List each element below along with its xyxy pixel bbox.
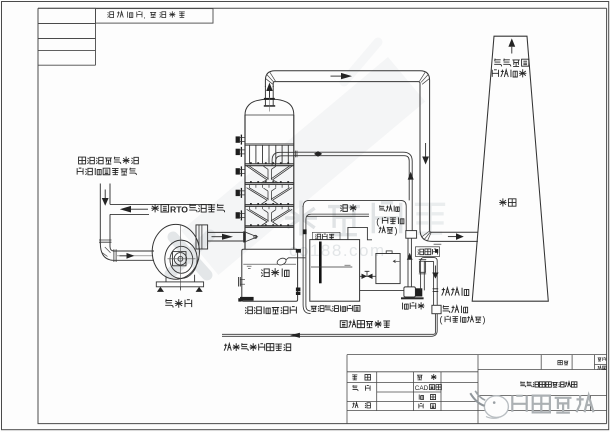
svg-text:(: ( bbox=[440, 315, 443, 325]
svg-text:(: ( bbox=[376, 217, 379, 227]
svg-text:,: , bbox=[144, 11, 146, 20]
svg-text:): ) bbox=[483, 315, 486, 325]
svg-text:): ) bbox=[395, 226, 398, 236]
svg-text:RTO: RTO bbox=[170, 204, 188, 214]
svg-text:CAD: CAD bbox=[415, 385, 429, 392]
